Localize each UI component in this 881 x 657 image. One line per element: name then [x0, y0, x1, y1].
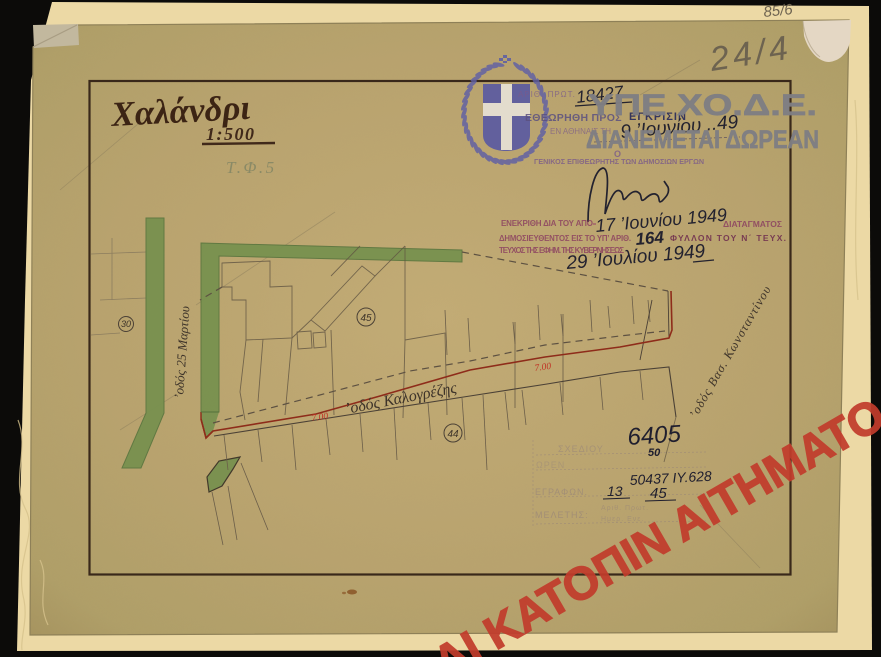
svg-text:ΥΠΕ ΧΟ.Δ.Ε.: ΥΠΕ ΧΟ.Δ.Ε.	[588, 89, 817, 122]
svg-text:44: 44	[447, 429, 459, 440]
svg-text:ΑΡΙΘ. ΠΡΩΤ.: ΑΡΙΘ. ΠΡΩΤ.	[518, 90, 576, 99]
svg-text:Αριθ. Πρωτ.: Αριθ. Πρωτ.	[601, 505, 649, 512]
svg-text:ΔΗΜΟΣΙΕΥΘΕΝΤΟΣ ΕΙΣ ΤΟ ΥΠ’ ΑΡΙΘ: ΔΗΜΟΣΙΕΥΘΕΝΤΟΣ ΕΙΣ ΤΟ ΥΠ’ ΑΡΙΘ.	[499, 234, 631, 243]
svg-text:ΔΙΑΤΑΓΜΑΤΟΣ: ΔΙΑΤΑΓΜΑΤΟΣ	[723, 219, 782, 229]
svg-text:30: 30	[121, 319, 131, 329]
svg-text:Τ.Φ.5: Τ.Φ.5	[226, 158, 277, 177]
svg-text:ΩΡΕΝ: ΩΡΕΝ	[536, 460, 565, 470]
svg-text:13: 13	[607, 483, 623, 499]
svg-text:ΜΕΛΕΤΗΣ:: ΜΕΛΕΤΗΣ:	[535, 510, 589, 520]
svg-text:ΕΝΕΚΡΙΘΗ ΔΙΑ ΤΟΥ ΑΠΟ: ΕΝΕΚΡΙΘΗ ΔΙΑ ΤΟΥ ΑΠΟ	[501, 219, 593, 228]
svg-text:ΓΕΝΙΚΟΣ ΕΠΙΘΕΩΡΗΤΗΣ ΤΩΝ ΔΗΜΟΣΙ: ΓΕΝΙΚΟΣ ΕΠΙΘΕΩΡΗΤΗΣ ΤΩΝ ΔΗΜΟΣΙΩΝ ΕΡΓΩΝ	[534, 157, 704, 166]
svg-text:ΣΧΕΔΙΟΥ: ΣΧΕΔΙΟΥ	[558, 444, 604, 454]
svg-text:ΕΓΡΑΦΩΝ.: ΕΓΡΑΦΩΝ.	[535, 487, 588, 497]
svg-text:45: 45	[650, 485, 667, 502]
svg-text:45: 45	[360, 313, 372, 324]
svg-text:1:500: 1:500	[206, 124, 256, 144]
svg-text:50: 50	[648, 447, 661, 459]
svg-text:85/6: 85/6	[763, 1, 794, 21]
svg-text:ΔΙΑΝΕΜΕΤΑΙ ΔΩΡΕΑΝ: ΔΙΑΝΕΜΕΤΑΙ ΔΩΡΕΑΝ	[586, 126, 819, 154]
